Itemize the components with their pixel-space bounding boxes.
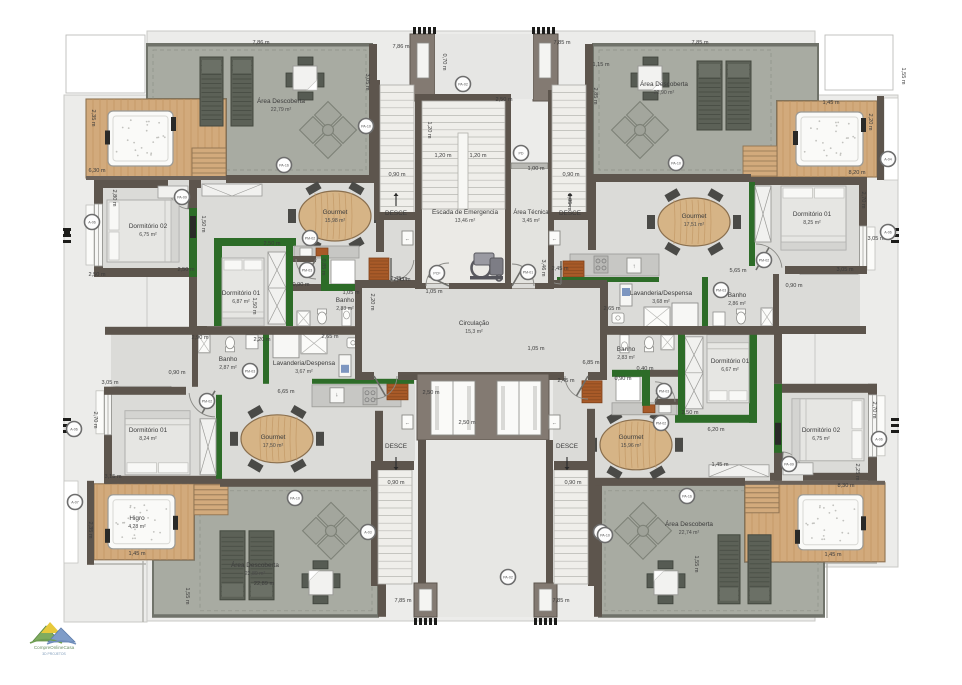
svg-text:PCF: PCF: [433, 272, 441, 276]
svg-text:Higro: Higro: [129, 515, 145, 522]
svg-text:PM-03: PM-03: [302, 269, 313, 273]
svg-text:8,24 m²: 8,24 m²: [139, 436, 157, 442]
svg-text:←: ←: [552, 237, 558, 243]
svg-text:2,20 m: 2,20 m: [369, 293, 375, 310]
svg-text:22,89 m: 22,89 m: [254, 581, 275, 587]
svg-text:3,46 m: 3,46 m: [540, 259, 546, 276]
svg-text:0,90 m: 0,90 m: [387, 480, 404, 486]
svg-text:2,50 m: 2,50 m: [263, 241, 280, 247]
svg-text:Banho: Banho: [219, 356, 238, 363]
svg-text:Dormitório 01: Dormitório 01: [129, 427, 168, 434]
svg-text:22,89 m²: 22,89 m²: [245, 571, 266, 577]
svg-text:3,45 m²: 3,45 m²: [522, 218, 540, 224]
svg-text:Área Descoberta: Área Descoberta: [640, 79, 688, 88]
svg-text:2,50 m: 2,50 m: [458, 420, 475, 426]
svg-text:A-06: A-06: [875, 438, 883, 442]
svg-text:PM-02: PM-02: [305, 237, 316, 241]
svg-text:Dormitório 01: Dormitório 01: [222, 290, 261, 297]
svg-text:2,90 m: 2,90 m: [191, 335, 208, 341]
svg-text:Circulação: Circulação: [459, 320, 490, 327]
svg-text:Gourmet: Gourmet: [323, 209, 348, 216]
svg-text:2,20 m: 2,20 m: [253, 337, 270, 343]
svg-text:0,90 m: 0,90 m: [614, 376, 631, 382]
svg-text:7,85 m: 7,85 m: [691, 40, 708, 46]
svg-text:4,28 m²: 4,28 m²: [128, 524, 146, 530]
svg-text:22,90 m²: 22,90 m²: [654, 90, 675, 96]
svg-text:6,75 m²: 6,75 m²: [812, 436, 830, 442]
svg-text:1,50 m: 1,50 m: [251, 297, 257, 314]
svg-text:PA-10: PA-10: [361, 125, 371, 129]
svg-text:2,86 m²: 2,86 m²: [728, 301, 746, 307]
svg-text:1,20 m: 1,20 m: [469, 153, 486, 159]
svg-text:Banho: Banho: [617, 346, 636, 353]
svg-text:←: ←: [405, 237, 411, 243]
svg-text:2,87 m²: 2,87 m²: [219, 365, 237, 371]
svg-text:6,85 m: 6,85 m: [582, 360, 599, 366]
svg-text:A-03: A-03: [364, 531, 372, 535]
svg-text:2,45 m: 2,45 m: [551, 266, 568, 272]
svg-text:PA-10: PA-10: [600, 534, 610, 538]
svg-text:2,83 m²: 2,83 m²: [336, 306, 354, 312]
svg-text:1,05 m: 1,05 m: [342, 290, 359, 296]
svg-text:Gourmet: Gourmet: [682, 213, 707, 220]
svg-text:A-07: A-07: [71, 501, 79, 505]
svg-text:PA-09: PA-09: [177, 196, 187, 200]
svg-text:0,90 m: 0,90 m: [292, 282, 309, 288]
svg-text:2,45 m: 2,45 m: [557, 378, 574, 384]
svg-text:Gourmet: Gourmet: [261, 434, 286, 441]
svg-text:0,70 m: 0,70 m: [441, 53, 447, 70]
svg-text:15,98 m²: 15,98 m²: [325, 218, 346, 224]
svg-text:Lavanderia/Despensa: Lavanderia/Despensa: [630, 290, 693, 297]
svg-text:7,85 m: 7,85 m: [394, 598, 411, 604]
svg-text:0,85 m: 0,85 m: [320, 258, 326, 275]
svg-text:PM-02: PM-02: [656, 422, 667, 426]
svg-text:2,50 m: 2,50 m: [681, 410, 698, 416]
svg-text:0,90 m: 0,90 m: [785, 283, 802, 289]
svg-text:Área Descoberta: Área Descoberta: [257, 96, 305, 105]
svg-text:6,87 m²: 6,87 m²: [232, 299, 250, 305]
svg-text:DESCE: DESCE: [385, 443, 407, 450]
svg-text:PA-16: PA-16: [279, 164, 289, 168]
svg-text:6,75 m²: 6,75 m²: [139, 232, 157, 238]
svg-text:2,50 m: 2,50 m: [495, 97, 512, 103]
svg-text:8,30 m: 8,30 m: [837, 483, 854, 489]
svg-text:A-06: A-06: [884, 231, 892, 235]
svg-text:1,45 m: 1,45 m: [824, 552, 841, 558]
svg-text:2,85 m: 2,85 m: [592, 87, 598, 104]
svg-text:6,20 m: 6,20 m: [707, 427, 724, 433]
svg-text:13,46 m²: 13,46 m²: [455, 218, 476, 224]
svg-text:2,70 m: 2,70 m: [860, 191, 866, 208]
svg-text:1,20 m: 1,20 m: [434, 153, 451, 159]
svg-text:7,85 m: 7,85 m: [553, 40, 570, 46]
svg-text:PA-02: PA-02: [503, 576, 513, 580]
svg-text:2,35 m: 2,35 m: [87, 521, 93, 538]
svg-text:2,50 m: 2,50 m: [422, 390, 439, 396]
svg-text:PM-03: PM-03: [716, 289, 727, 293]
svg-text:8,25 m²: 8,25 m²: [803, 220, 821, 226]
svg-text:6,65 m: 6,65 m: [277, 389, 294, 395]
svg-text:1,55 m: 1,55 m: [693, 555, 699, 572]
svg-text:CompreOnlineCasa: CompreOnlineCasa: [34, 645, 75, 650]
svg-text:Lavanderia/Despensa: Lavanderia/Despensa: [273, 360, 336, 367]
svg-text:PA-02: PA-02: [458, 83, 468, 87]
svg-text:1,45 m: 1,45 m: [822, 100, 839, 106]
svg-text:1,50 m: 1,50 m: [200, 215, 206, 232]
svg-text:PA-16: PA-16: [682, 495, 692, 499]
svg-text:2,45 m: 2,45 m: [390, 276, 407, 282]
svg-text:2,80 m: 2,80 m: [111, 189, 117, 206]
svg-text:2,70 m: 2,70 m: [92, 411, 98, 428]
svg-text:15,96 m²: 15,96 m²: [621, 443, 642, 449]
svg-text:2,25 m: 2,25 m: [854, 463, 860, 480]
svg-text:1,45 m: 1,45 m: [711, 462, 728, 468]
svg-text:3,67 m²: 3,67 m²: [295, 369, 313, 375]
svg-text:2,65 m: 2,65 m: [321, 334, 338, 340]
svg-text:Gourmet: Gourmet: [619, 434, 644, 441]
svg-text:PD: PD: [519, 152, 524, 156]
svg-text:Área Descoberta: Área Descoberta: [665, 519, 713, 528]
svg-text:1,05 m: 1,05 m: [527, 346, 544, 352]
svg-text:2,70 m: 2,70 m: [871, 401, 877, 418]
svg-text:2,65 m: 2,65 m: [603, 306, 620, 312]
svg-text:3,05 m: 3,05 m: [836, 267, 853, 273]
svg-text:0,40 m: 0,40 m: [636, 366, 653, 372]
svg-text:7,85 m: 7,85 m: [552, 598, 569, 604]
svg-text:DESCE: DESCE: [556, 443, 578, 450]
svg-text:←: ←: [405, 421, 411, 427]
svg-text:2,85 m: 2,85 m: [566, 193, 572, 210]
svg-text:8,20 m: 8,20 m: [848, 170, 865, 176]
svg-text:PM-03: PM-03: [245, 370, 256, 374]
svg-text:2,35 m: 2,35 m: [90, 109, 96, 126]
svg-text:22,74 m²: 22,74 m²: [679, 530, 700, 536]
svg-text:DESCE: DESCE: [559, 210, 581, 217]
svg-text:Banho: Banho: [336, 297, 355, 304]
svg-text:0,90 m: 0,90 m: [168, 370, 185, 376]
svg-text:Área Descoberta: Área Descoberta: [231, 560, 279, 569]
svg-text:Área Técnica: Área Técnica: [513, 209, 549, 216]
svg-text:1,00 m: 1,00 m: [527, 166, 544, 172]
svg-text:Dormitório 02: Dormitório 02: [129, 223, 168, 230]
svg-text:2,83 m²: 2,83 m²: [617, 355, 635, 361]
svg-text:DESCE: DESCE: [385, 210, 407, 217]
svg-text:A-04: A-04: [884, 158, 892, 162]
svg-text:PA-10: PA-10: [290, 497, 300, 501]
svg-text:0,90 m: 0,90 m: [562, 172, 579, 178]
svg-text:3,05 m: 3,05 m: [101, 380, 118, 386]
svg-text:0,90 m: 0,90 m: [388, 172, 405, 178]
svg-text:5,65 m: 5,65 m: [729, 268, 746, 274]
svg-text:3D PROJETOS: 3D PROJETOS: [42, 652, 66, 656]
svg-text:15,3 m²: 15,3 m²: [465, 329, 483, 335]
svg-text:PA-09: PA-09: [784, 463, 794, 467]
svg-text:1,15 m: 1,15 m: [592, 62, 609, 68]
svg-text:0,90 m: 0,90 m: [564, 480, 581, 486]
svg-text:1,45 m: 1,45 m: [128, 551, 145, 557]
svg-text:A-06: A-06: [70, 428, 78, 432]
svg-text:PM-01: PM-01: [523, 271, 534, 275]
svg-text:22,79 m²: 22,79 m²: [271, 107, 292, 113]
svg-text:2,20 m: 2,20 m: [867, 113, 873, 130]
svg-text:PM-03: PM-03: [659, 390, 670, 394]
svg-text:PA-10: PA-10: [671, 162, 681, 166]
svg-text:←: ←: [552, 421, 558, 427]
svg-text:PM-02: PM-02: [759, 259, 770, 263]
svg-text:7,86 m: 7,86 m: [252, 40, 269, 46]
svg-text:7,86 m: 7,86 m: [392, 44, 409, 50]
svg-text:17,51 m²: 17,51 m²: [684, 222, 705, 228]
svg-text:6,30 m: 6,30 m: [88, 168, 105, 174]
svg-text:17,50 m²: 17,50 m²: [263, 443, 284, 449]
svg-text:Dormitório 01: Dormitório 01: [793, 211, 832, 218]
svg-text:1,55 m: 1,55 m: [900, 67, 906, 84]
svg-text:2,50 m: 2,50 m: [88, 272, 105, 278]
svg-text:2,50 m: 2,50 m: [177, 267, 194, 273]
svg-text:A-06: A-06: [88, 221, 96, 225]
svg-text:3,15 m: 3,15 m: [104, 474, 121, 480]
svg-text:Dormitório 02: Dormitório 02: [802, 427, 841, 434]
svg-text:Escada de Emergencia: Escada de Emergencia: [432, 209, 499, 216]
svg-text:PM-02: PM-02: [202, 400, 213, 404]
svg-text:3,05 m: 3,05 m: [364, 73, 370, 90]
svg-text:Dormitório 01: Dormitório 01: [711, 358, 750, 365]
svg-text:1,05 m: 1,05 m: [425, 289, 442, 295]
svg-text:1,55 m: 1,55 m: [184, 587, 190, 604]
svg-text:Banho: Banho: [728, 292, 747, 299]
svg-text:6,67 m²: 6,67 m²: [721, 367, 739, 373]
svg-text:3,68 m²: 3,68 m²: [652, 299, 670, 305]
svg-text:1,20 m: 1,20 m: [426, 121, 432, 138]
